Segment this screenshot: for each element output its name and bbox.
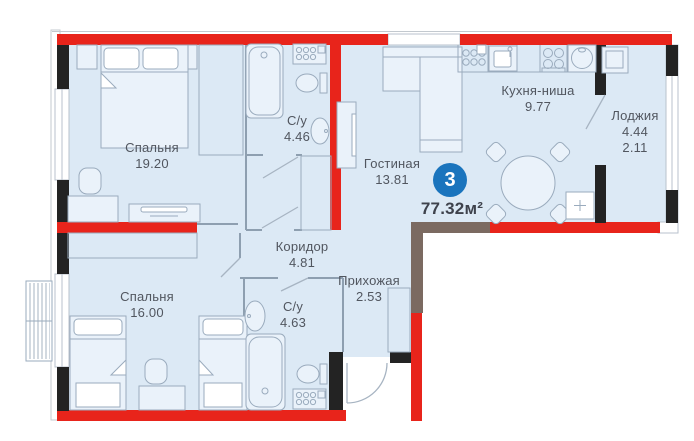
room-name: Кухня-ниша <box>501 83 574 99</box>
ac-basket-icon <box>26 281 52 361</box>
washer-icon <box>293 44 326 64</box>
room-label-bath1: С/у 4.46 <box>284 113 310 145</box>
room-area-2: 2.11 <box>611 140 658 156</box>
room-area: 16.00 <box>120 305 174 321</box>
chair-icon <box>79 168 101 194</box>
room-label-bath2: С/у 4.63 <box>280 299 306 331</box>
tv-stand-icon <box>337 102 356 168</box>
room-area: 19.20 <box>125 156 179 172</box>
tv-stand-icon <box>129 204 200 222</box>
room-area: 4.63 <box>280 315 306 331</box>
single-bed-icon <box>199 316 247 410</box>
plan-drawing <box>0 0 694 441</box>
room-area: 4.81 <box>276 255 329 271</box>
room-label-corridor: Коридор 4.81 <box>276 239 329 271</box>
total-area-label: 77.32м² <box>421 199 483 219</box>
bathtub-icon <box>246 334 285 410</box>
chair-icon <box>145 359 167 384</box>
room-area: 4.46 <box>284 129 310 145</box>
room-name: Спальня <box>125 140 179 156</box>
room-label-loggia: Лоджия 4.44 2.11 <box>611 108 658 156</box>
room-label-living: Гостиная 13.81 <box>364 156 420 188</box>
toilet-icon <box>297 364 327 384</box>
loggia-cabinet-icon <box>602 47 628 73</box>
washer-icon <box>293 389 326 409</box>
desk-icon <box>139 386 185 410</box>
single-bed-icon <box>70 316 126 410</box>
sink-icon <box>311 118 329 144</box>
entry-door-icon <box>347 363 387 403</box>
nightstand-icon <box>77 45 97 69</box>
tv-icon <box>141 207 187 212</box>
apartment-number-badge: 3 <box>433 163 467 197</box>
room-name: С/у <box>280 299 306 315</box>
desk-icon <box>68 196 118 222</box>
room-area: 13.81 <box>364 172 420 188</box>
room-area: 9.77 <box>501 99 574 115</box>
room-label-hallway: Прихожая 2.53 <box>338 273 400 305</box>
room-name: Коридор <box>276 239 329 255</box>
brown-walls <box>411 222 490 313</box>
room-area: 2.53 <box>338 289 400 305</box>
vent-shaft-icon <box>566 192 594 219</box>
toilet-icon <box>296 73 327 93</box>
kitchen-sink-icon <box>489 46 517 71</box>
tv-icon <box>352 114 356 156</box>
room-label-kitchen: Кухня-ниша 9.77 <box>501 83 574 115</box>
room-name: Гостиная <box>364 156 420 172</box>
appliance-icon <box>568 45 596 72</box>
room-label-bedroom1: Спальня 19.20 <box>125 140 179 172</box>
bathtub-icon <box>246 44 283 118</box>
floor-plan: Спальня 19.20 С/у 4.46 Гостиная 13.81 Ку… <box>0 0 694 441</box>
sink-icon <box>245 301 265 331</box>
room-name: Прихожая <box>338 273 400 289</box>
room-name: С/у <box>284 113 310 129</box>
room-area: 4.44 <box>611 124 658 140</box>
room-name: Спальня <box>120 289 174 305</box>
room-name: Лоджия <box>611 108 658 124</box>
room-label-bedroom2: Спальня 16.00 <box>120 289 174 321</box>
